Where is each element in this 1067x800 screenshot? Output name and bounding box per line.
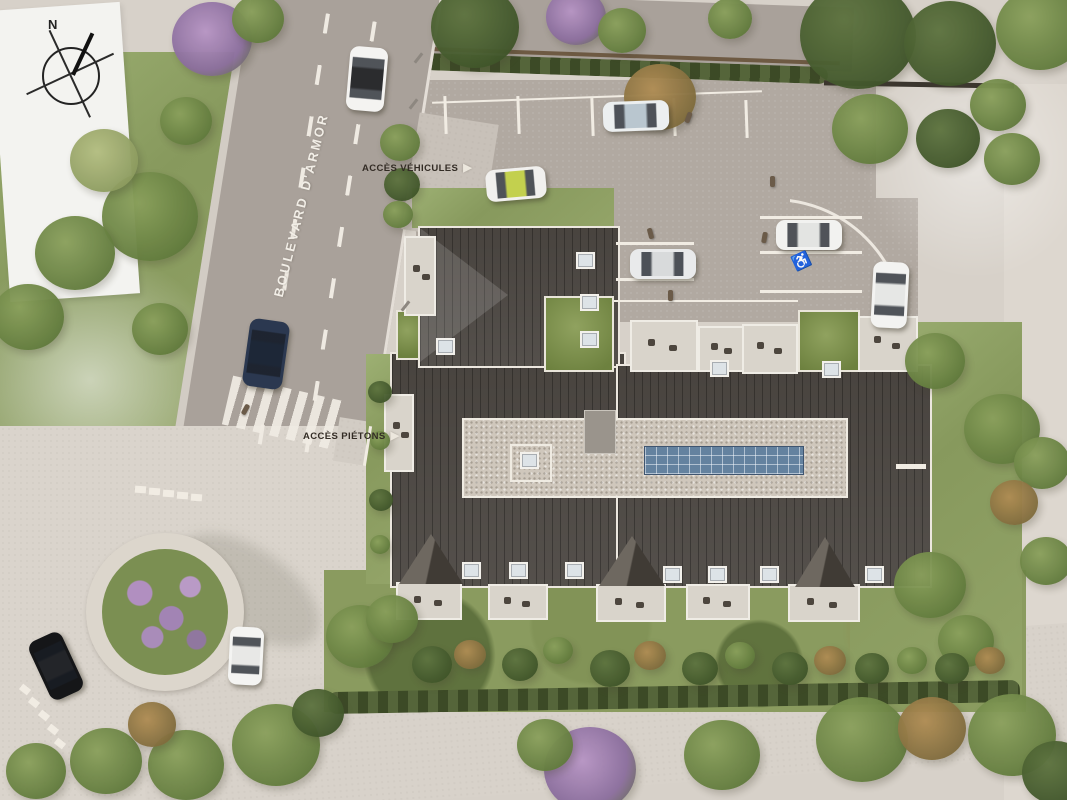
people-layer <box>0 0 1067 800</box>
person <box>684 111 692 123</box>
vehicle-access-arrow-icon: ▶ <box>463 163 472 174</box>
person <box>647 228 655 240</box>
pedestrian-access-text: ACCÈS PIÉTONS <box>303 431 386 442</box>
vehicle-access-text: ACCÈS VÉHICULES <box>362 163 458 174</box>
site-plan-canvas: N <box>0 0 1067 800</box>
person <box>241 403 251 415</box>
lamppost-icon <box>409 98 419 109</box>
person <box>668 290 673 301</box>
vehicle-access-label: ACCÈS VÉHICULES ▶ <box>362 163 472 174</box>
pedestrian-access-label: ACCÈS PIÉTONS ▶ <box>303 431 400 442</box>
person <box>761 232 768 244</box>
lamppost-icon <box>414 52 424 63</box>
lamppost-icon <box>401 300 411 311</box>
person <box>770 176 775 187</box>
pedestrian-access-arrow-icon: ▶ <box>391 431 400 442</box>
